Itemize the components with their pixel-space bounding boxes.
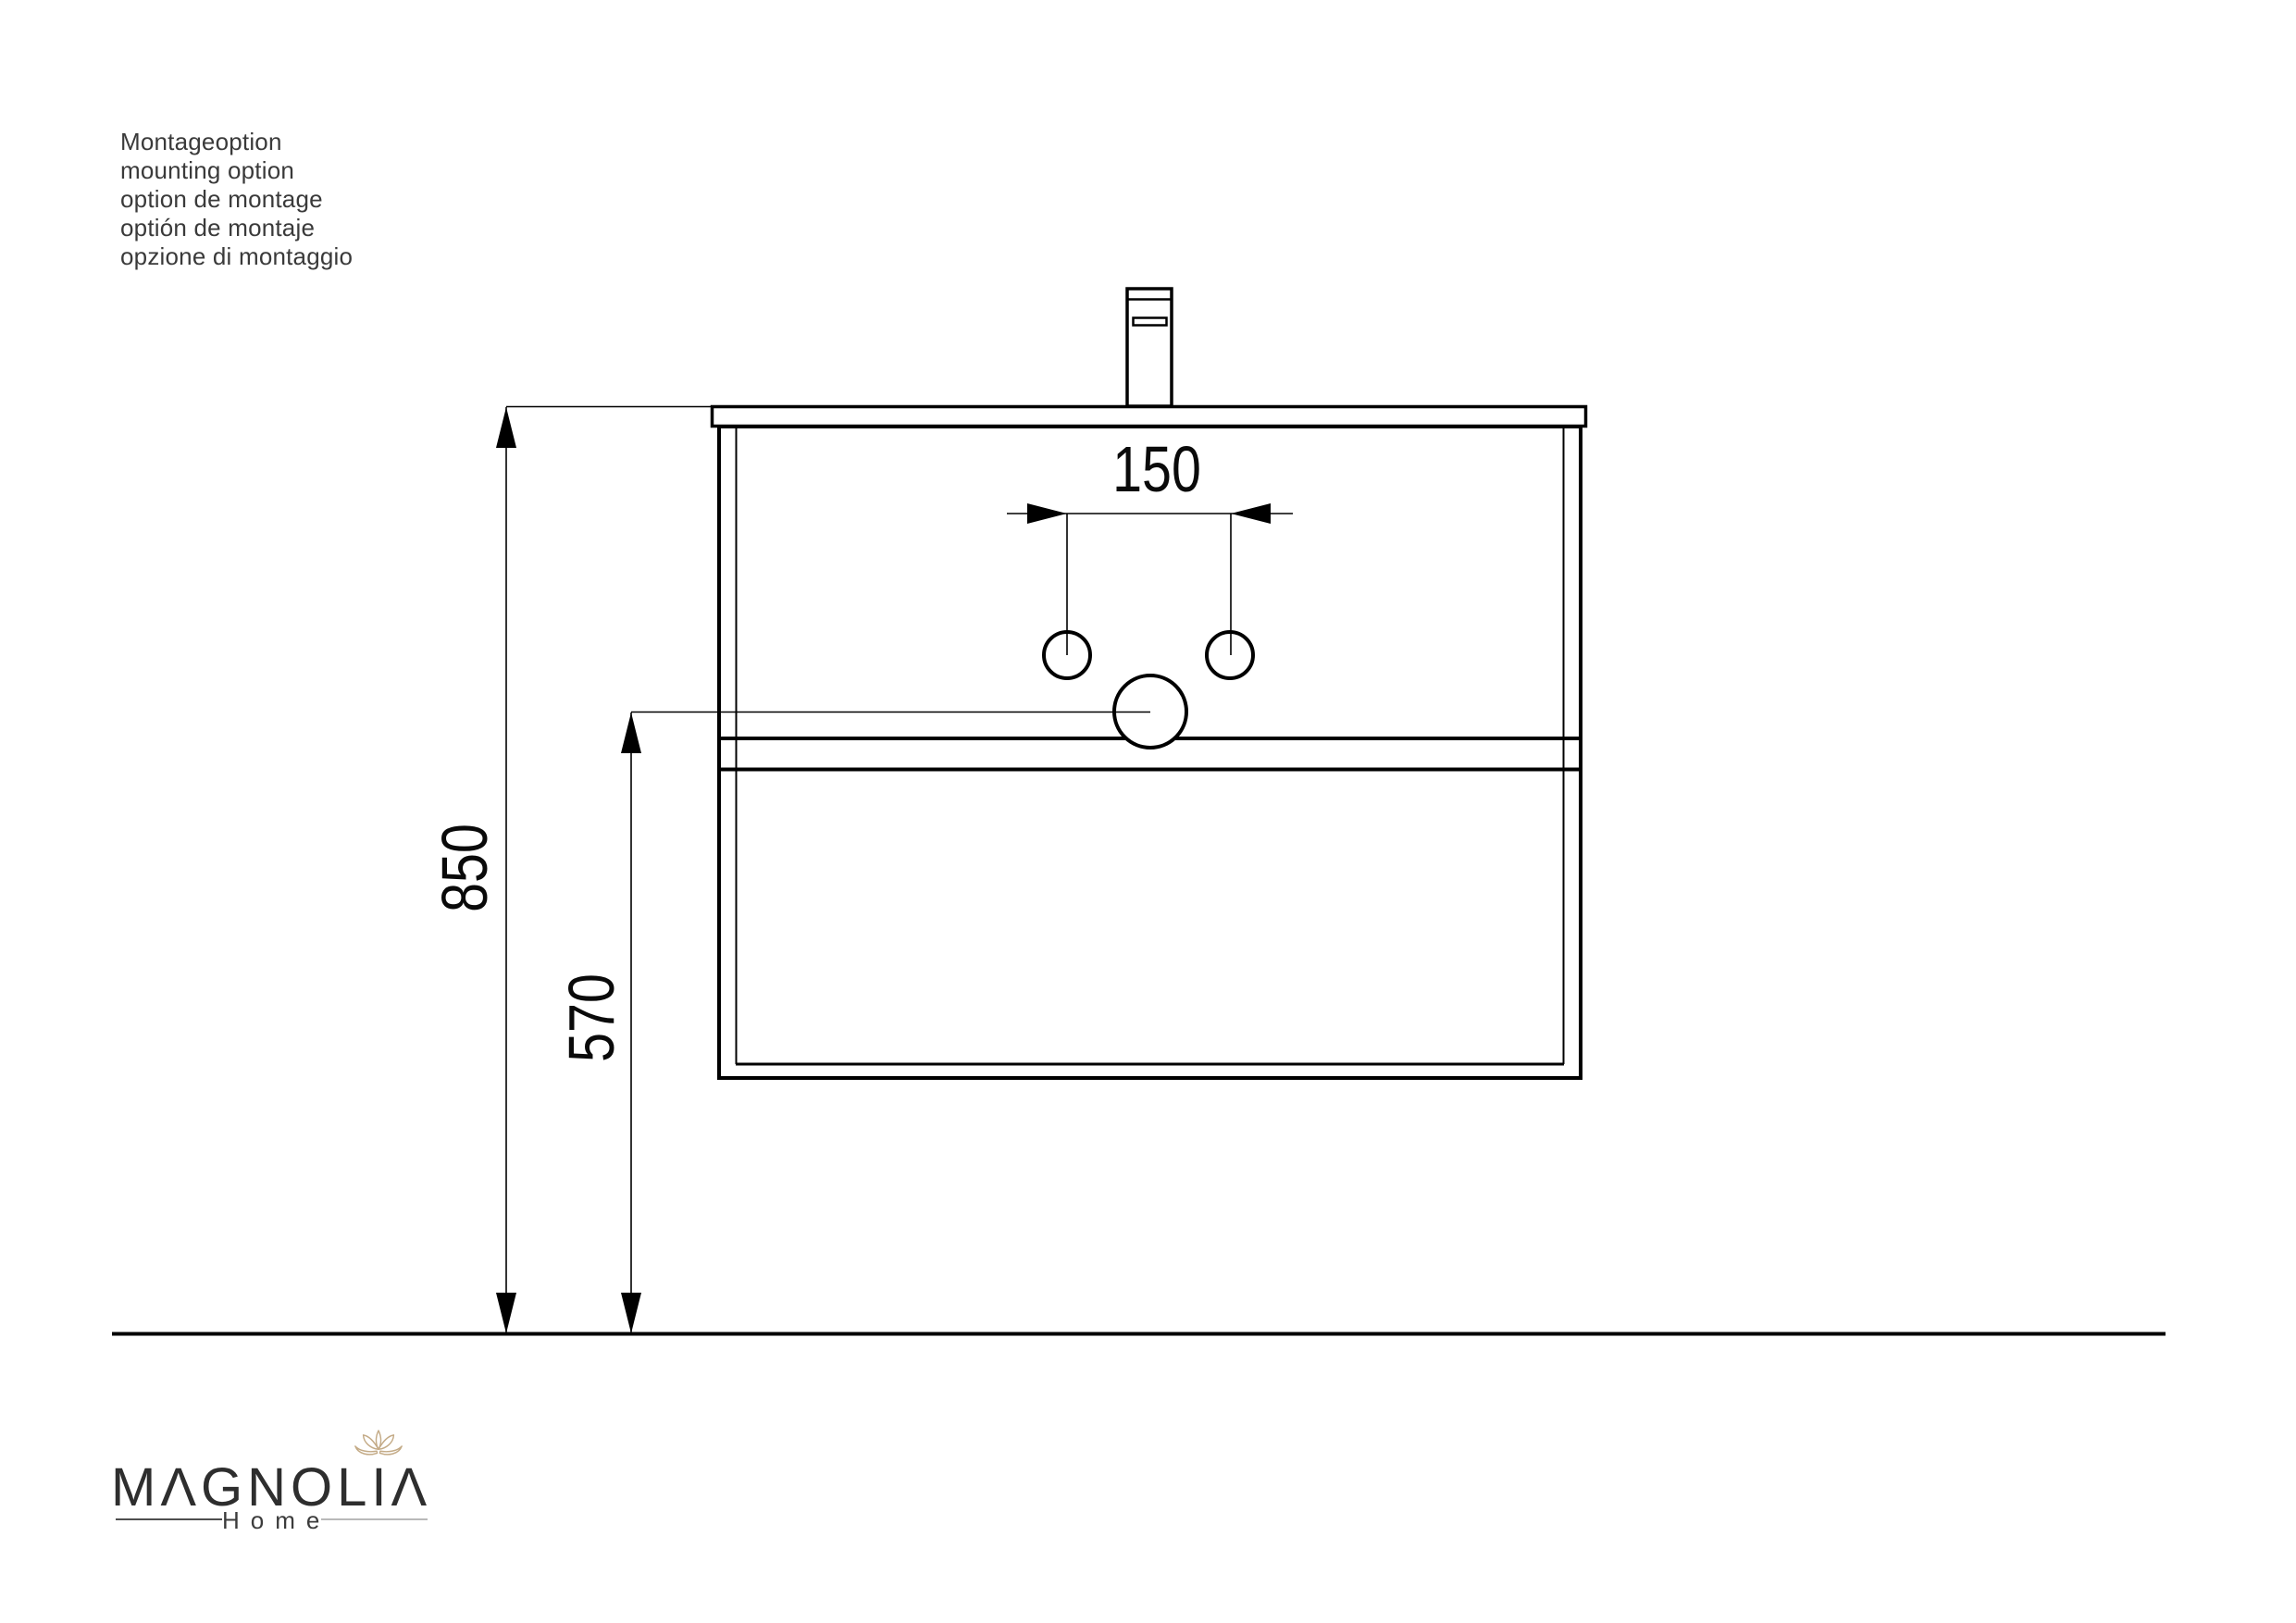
dimension-850 [496, 407, 713, 1334]
cabinet-outer [719, 427, 1581, 1078]
dim-850-arrow-top [496, 407, 516, 448]
faucet [1127, 289, 1172, 406]
faucet-aerator [1134, 318, 1167, 326]
dim-570-label: 570 [557, 957, 626, 1078]
home-rule-right [321, 1518, 428, 1520]
brand-subtitle: Home [222, 1506, 324, 1535]
technical-drawing-page: Montageoption mounting option option de … [0, 0, 2296, 1623]
fixing-hole-right [1207, 632, 1253, 678]
dim-850-arrow-bottom [496, 1293, 516, 1333]
dim-150-label: 150 [1081, 435, 1233, 503]
cabinet-body [719, 427, 1581, 1078]
countertop [713, 407, 1586, 427]
vanity-front-view-drawing [0, 0, 2296, 1623]
dim-850-label: 850 [430, 807, 499, 928]
dim-570-arrow-bottom [621, 1293, 641, 1333]
faucet-body [1127, 289, 1172, 406]
home-rule-left [116, 1518, 222, 1520]
dim-570-arrow-top [621, 712, 641, 753]
